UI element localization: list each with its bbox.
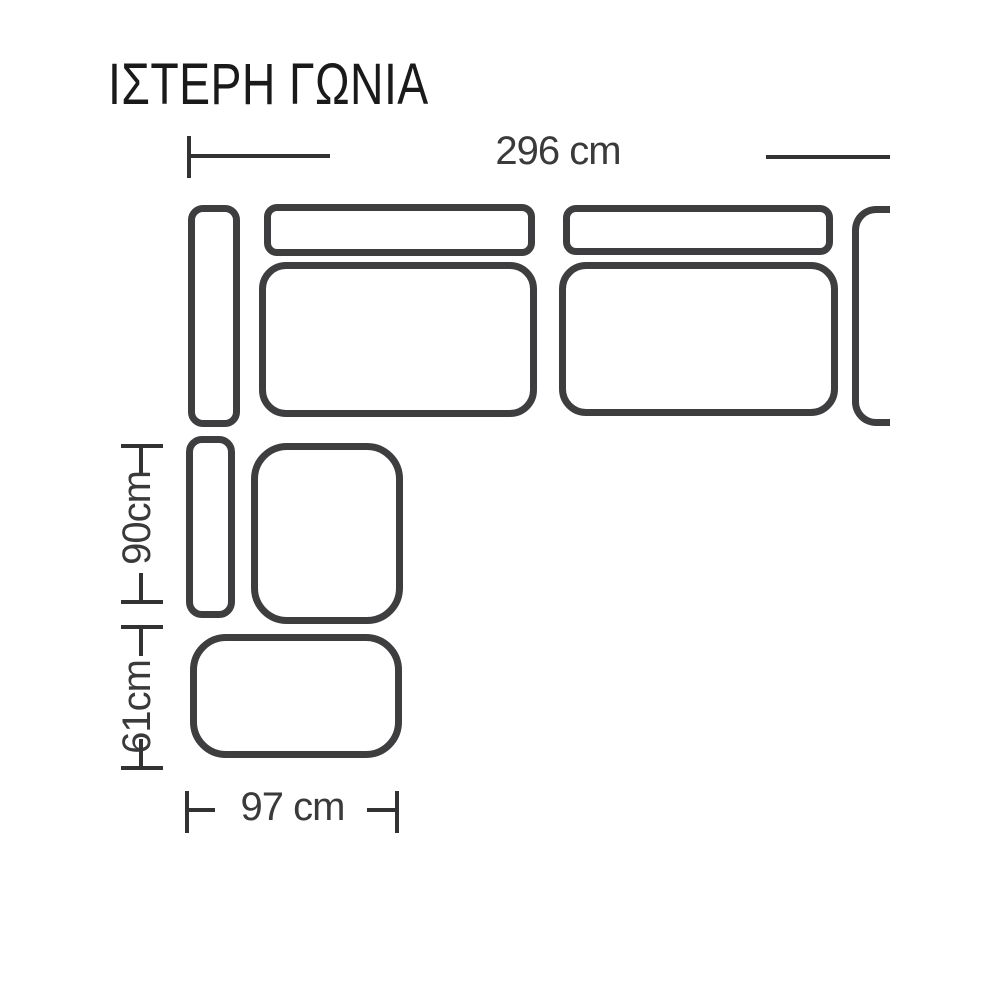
dimension-tick <box>121 600 163 604</box>
dimension-line <box>139 739 143 767</box>
backrest-cushion-1 <box>264 204 535 256</box>
dimension-label-width-total: 296 cm <box>460 131 656 171</box>
backrest-cushion-2 <box>563 205 833 255</box>
dimension-label-width-97: 97 cm <box>215 787 370 827</box>
seat-cushion-2 <box>559 262 838 416</box>
dimension-tick <box>185 791 189 833</box>
dimension-line <box>189 808 215 812</box>
corner-seat <box>251 443 403 624</box>
sofa-dimension-diagram: ΙΣΤΕΡΗ ΓΩΝΙΑ 296 cm 90cm 61cm 97 c <box>0 0 1000 1000</box>
ottoman <box>190 634 402 758</box>
armrest-top-left <box>188 205 240 427</box>
dimension-line <box>187 154 330 158</box>
dimension-label-depth-61: 61cm <box>117 660 157 754</box>
dimension-line <box>367 808 397 812</box>
diagram-canvas: 296 cm 90cm 61cm 97 cm <box>0 0 890 1000</box>
seat-cushion-1 <box>259 262 537 417</box>
dimension-tick <box>121 766 163 770</box>
dimension-label-depth-90: 90cm <box>117 471 157 565</box>
armrest-bottom-left <box>186 436 235 618</box>
armrest-right-clipped <box>852 206 890 426</box>
dimension-line <box>766 155 890 159</box>
dimension-line <box>139 629 143 656</box>
dimension-tick <box>395 791 399 833</box>
dimension-line <box>139 573 143 601</box>
